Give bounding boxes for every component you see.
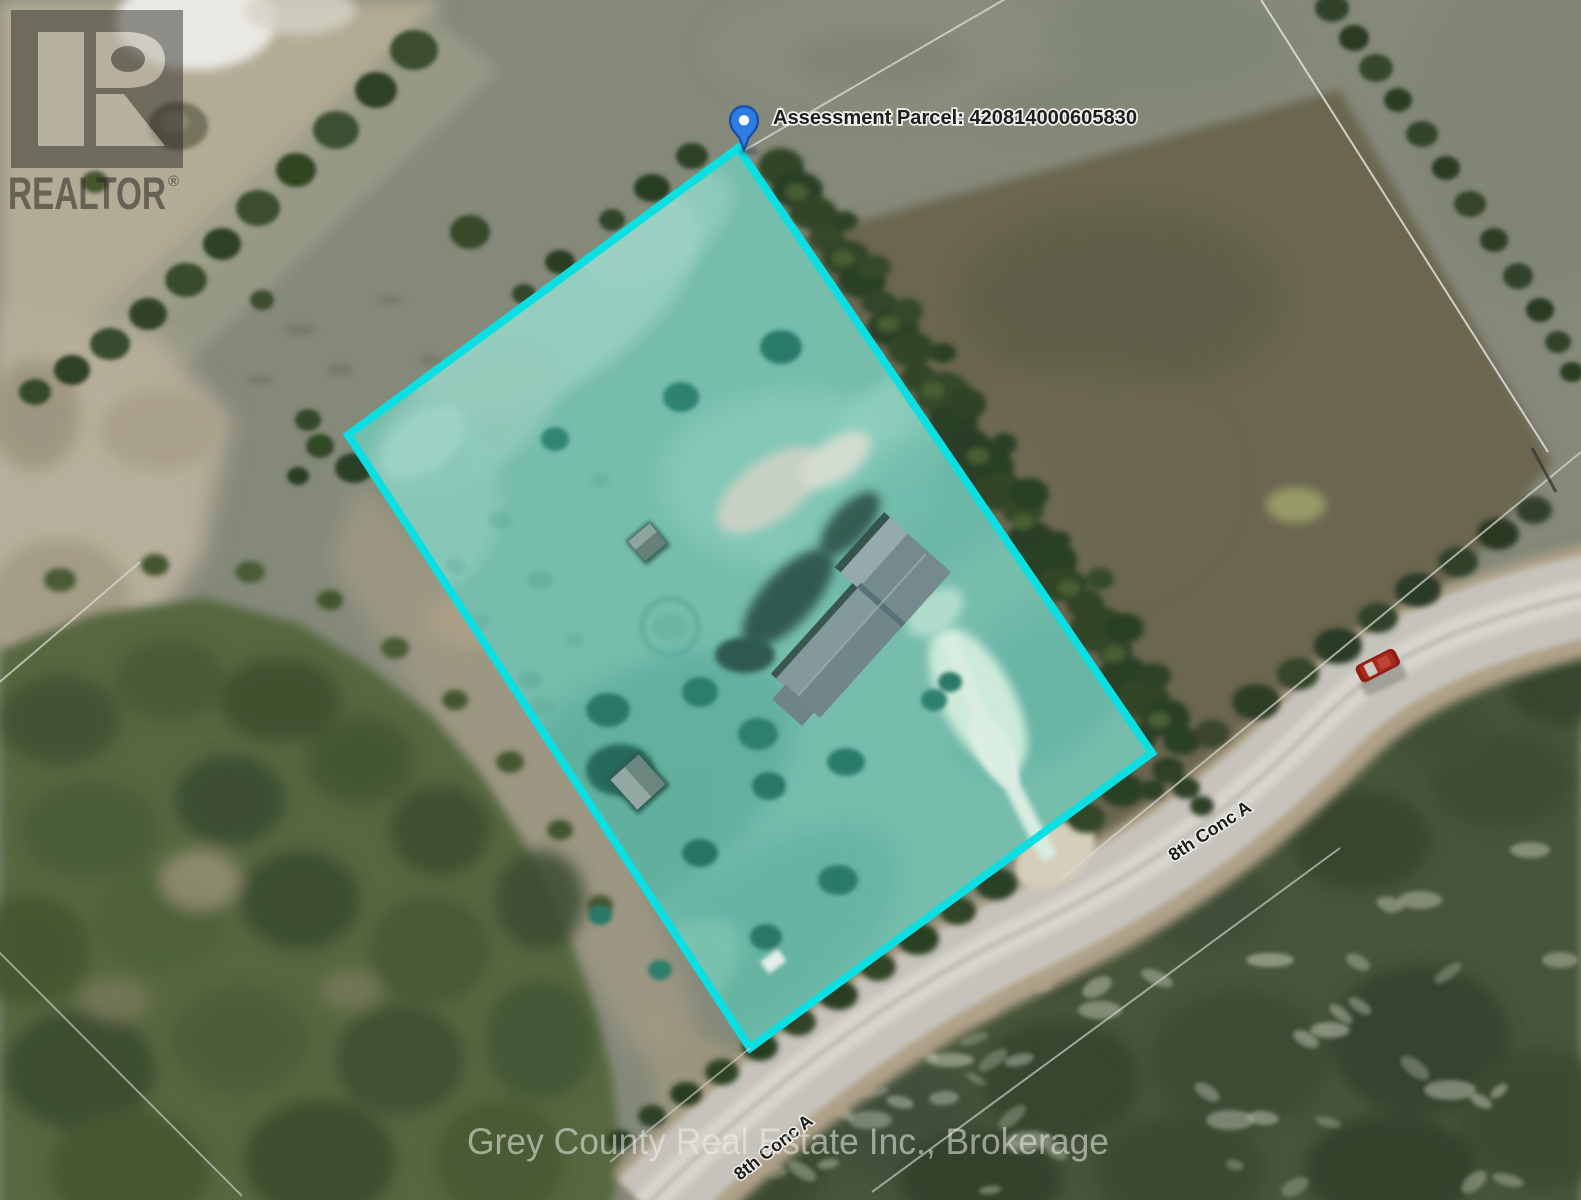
svg-text:Grey County Real Estate Inc.,: Grey County Real Estate Inc., Brokerage: [467, 1121, 1109, 1162]
svg-text:®: ®: [168, 173, 179, 190]
svg-text:REALTOR: REALTOR: [8, 168, 166, 219]
svg-text:Assessment Parcel: 42081400060: Assessment Parcel: 420814000605830: [773, 107, 1137, 129]
